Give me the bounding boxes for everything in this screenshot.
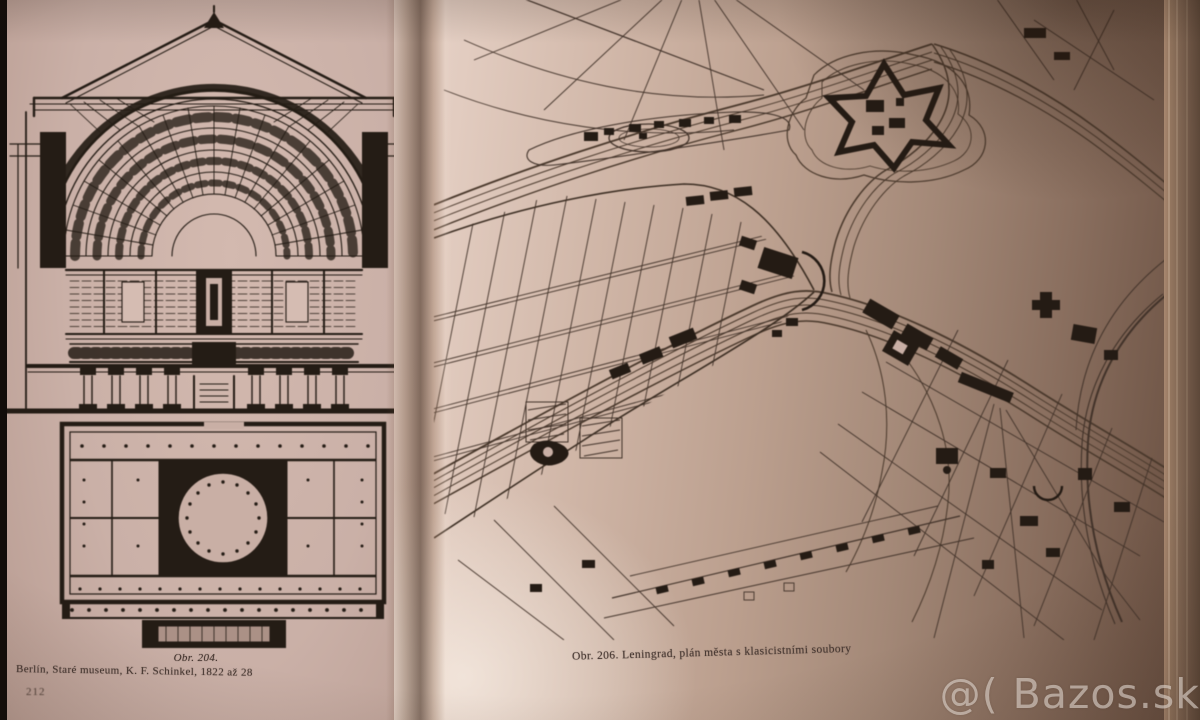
- dome-section-figure: [4, 4, 420, 416]
- figure-204-caption-text: Berlín, Staré museum, K. F. Schinkel, 18…: [16, 663, 386, 681]
- page-stack-edge: [1164, 0, 1200, 720]
- right-page: Obr. 206. Leningrad, plán města s klasic…: [394, 0, 1166, 720]
- book-photo: Obr. 204. Berlín, Staré museum, K. F. Sc…: [0, 0, 1200, 720]
- left-page: Obr. 204. Berlín, Staré museum, K. F. Sc…: [6, 0, 394, 720]
- floor-plan-figure: [54, 414, 399, 664]
- city-plan-figure: [434, 0, 1166, 640]
- page-number: 212: [26, 686, 46, 698]
- photo-left-edge: [0, 0, 7, 720]
- figure-206-caption: Obr. 206. Leningrad, plán města s klasic…: [572, 641, 912, 662]
- bazos-watermark: @( Bazos.sk: [940, 670, 1200, 718]
- figure-204-caption-number: Obr. 204.: [116, 652, 276, 664]
